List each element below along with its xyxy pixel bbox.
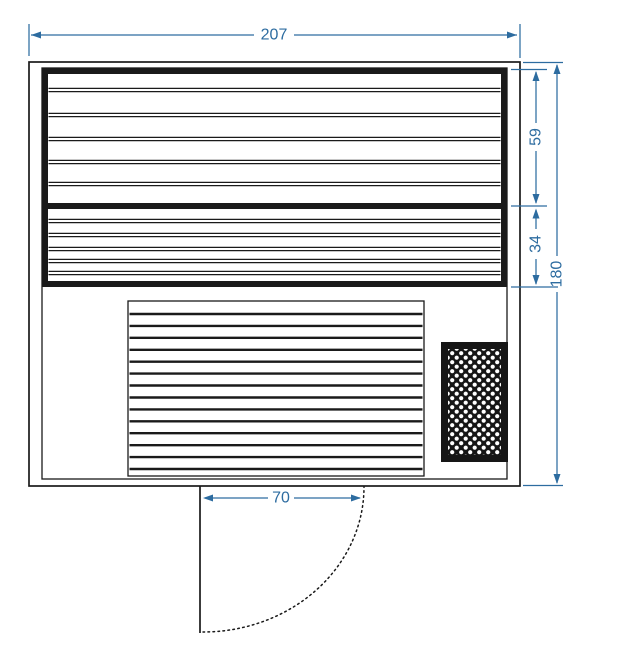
arrow-upper-bench-top xyxy=(533,71,540,81)
upper-bench-slats xyxy=(49,88,501,185)
arrow-door-left xyxy=(203,495,213,502)
floor-plan-canvas: 207 59 34 180 70 xyxy=(0,0,619,651)
arrow-width-right xyxy=(507,32,517,39)
dim-label-lower-bench-depth: 34 xyxy=(528,235,545,253)
floor-grate xyxy=(128,301,424,476)
dim-label-upper-bench-depth: 59 xyxy=(528,128,545,146)
sauna-floor-plan: 207 59 34 180 70 xyxy=(0,0,619,651)
arrow-lower-bench-top xyxy=(533,209,540,219)
arrow-door-right xyxy=(351,495,361,502)
heater xyxy=(445,346,505,459)
dim-label-door-opening: 70 xyxy=(272,490,290,507)
arrow-depth-bottom xyxy=(554,474,561,484)
dim-label-width: 207 xyxy=(261,27,288,44)
bench-block xyxy=(45,71,504,284)
arrow-width-left xyxy=(31,32,41,39)
lower-bench-slats xyxy=(49,219,501,274)
arrow-depth-top xyxy=(554,64,561,74)
arrow-lower-bench-bottom xyxy=(533,275,540,285)
dim-label-overall-depth: 180 xyxy=(549,261,566,288)
door-swing-arc xyxy=(203,487,364,632)
inner-wall xyxy=(42,68,507,479)
arrow-upper-bench-bottom xyxy=(533,194,540,204)
